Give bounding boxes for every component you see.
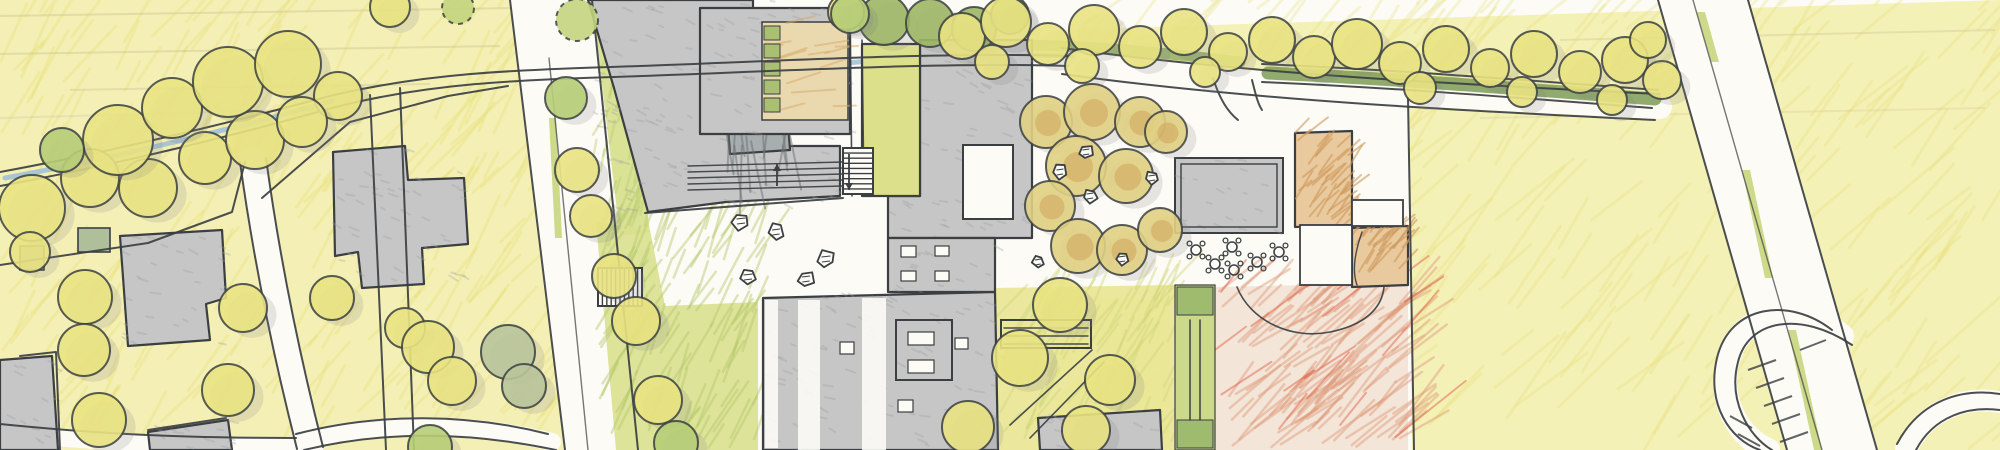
tree [72, 393, 126, 447]
tree [634, 376, 682, 424]
skylight [935, 246, 949, 256]
tree [1404, 72, 1436, 104]
tree [1033, 278, 1087, 332]
tree [310, 276, 354, 320]
planter-cell [764, 62, 780, 76]
tree [1597, 85, 1627, 115]
planter-cell [764, 98, 780, 112]
tree [58, 324, 110, 376]
tree [0, 175, 65, 241]
tree [612, 297, 660, 345]
roof-strip [798, 300, 820, 450]
tree [255, 31, 321, 97]
tree [1161, 9, 1207, 55]
tree [545, 77, 587, 119]
tree [1027, 23, 1069, 65]
tree [556, 0, 598, 41]
skylight [901, 271, 916, 281]
skylight [901, 246, 916, 257]
tree [277, 97, 327, 147]
tree [1062, 406, 1110, 450]
tree [981, 0, 1031, 47]
green-band-square [1177, 420, 1213, 448]
tree [1190, 57, 1220, 87]
roof-strip [862, 298, 886, 450]
planter-cell [764, 80, 780, 94]
tree [428, 357, 476, 405]
white-court-south [1300, 225, 1352, 285]
site-plan-page [0, 0, 2000, 450]
white-court-mid [1352, 200, 1403, 226]
tree [1293, 36, 1335, 78]
tree-autumn-core [1158, 123, 1179, 144]
tree-autumn-core [1067, 234, 1094, 261]
tree [1085, 355, 1135, 405]
tree [992, 330, 1048, 386]
boulder [1079, 146, 1093, 158]
skylight [955, 338, 968, 349]
tree-autumn-core [1151, 220, 1173, 242]
inner-courtyard [963, 145, 1013, 219]
skylight [898, 400, 913, 412]
tree [219, 284, 267, 332]
rooftop-skylight [908, 332, 934, 345]
tree [975, 45, 1009, 79]
tree [1332, 19, 1382, 69]
tree [1249, 17, 1295, 63]
tree [1119, 26, 1161, 68]
tree [10, 232, 50, 272]
tree [193, 47, 263, 117]
tree-autumn-core [1080, 99, 1108, 127]
tree [1471, 49, 1509, 87]
green-band-square [1177, 287, 1213, 315]
rooftop-skylight [908, 360, 934, 373]
tree [831, 0, 869, 33]
tree [1643, 61, 1681, 99]
site-plan-canvas [0, 0, 2000, 450]
roof-strip [765, 300, 778, 448]
tree [942, 401, 994, 450]
tree [555, 148, 599, 192]
tree-autumn-core [1115, 164, 1142, 191]
tree [1511, 31, 1557, 77]
tree [570, 195, 612, 237]
planter-cell [764, 44, 780, 58]
tree [1507, 77, 1537, 107]
tree [502, 364, 546, 408]
tree [1065, 49, 1099, 83]
tree [592, 254, 636, 298]
tree-autumn-core [1035, 110, 1061, 136]
skylight [935, 271, 949, 281]
skylight [840, 342, 854, 354]
tree-autumn-core [1040, 195, 1065, 220]
tree [40, 128, 84, 172]
tree [1423, 26, 1469, 72]
tree [1559, 51, 1601, 93]
tree [1069, 5, 1119, 55]
tree [58, 270, 112, 324]
tree [202, 364, 254, 416]
tree [1630, 22, 1666, 58]
planter-cell [764, 26, 780, 40]
pavilion [1175, 158, 1283, 233]
